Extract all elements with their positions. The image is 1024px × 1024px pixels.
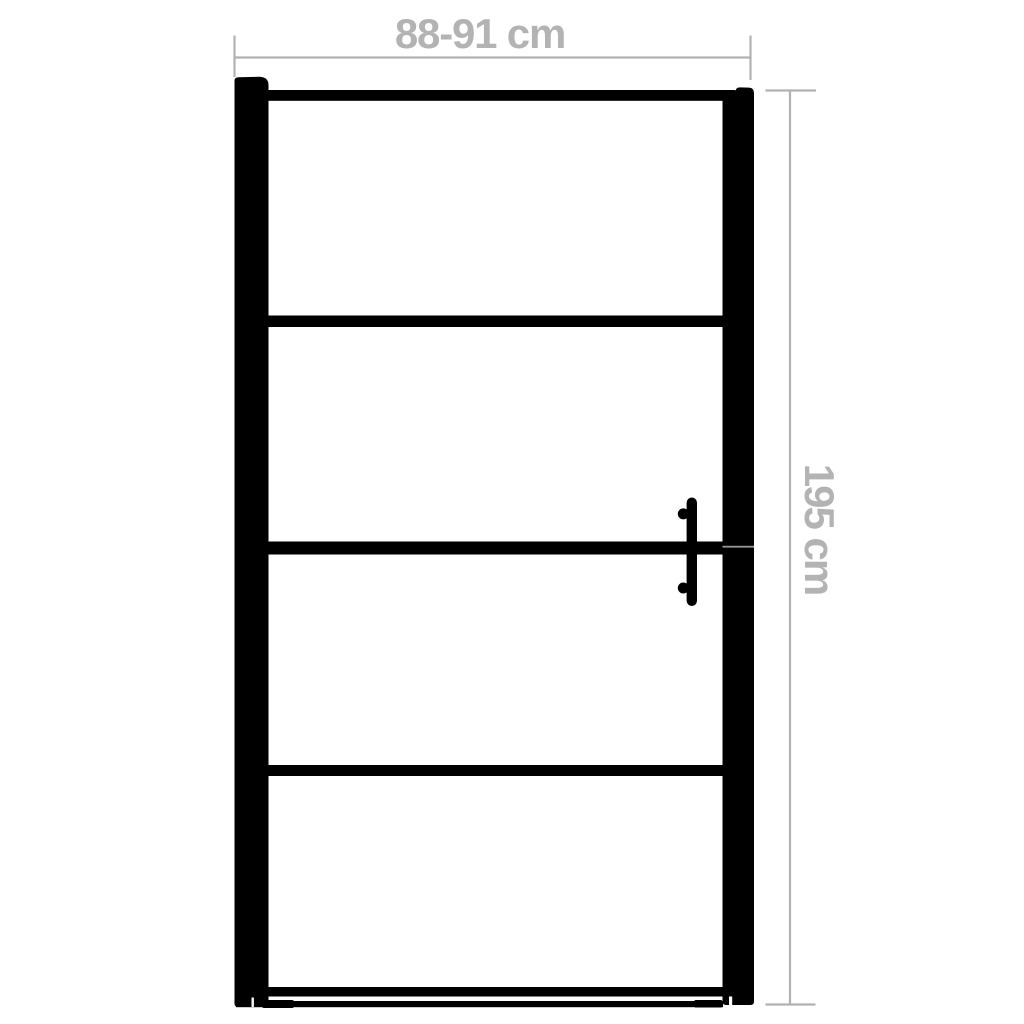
svg-text:195 cm: 195 cm (796, 464, 843, 594)
svg-text:88-91 cm: 88-91 cm (395, 10, 565, 57)
